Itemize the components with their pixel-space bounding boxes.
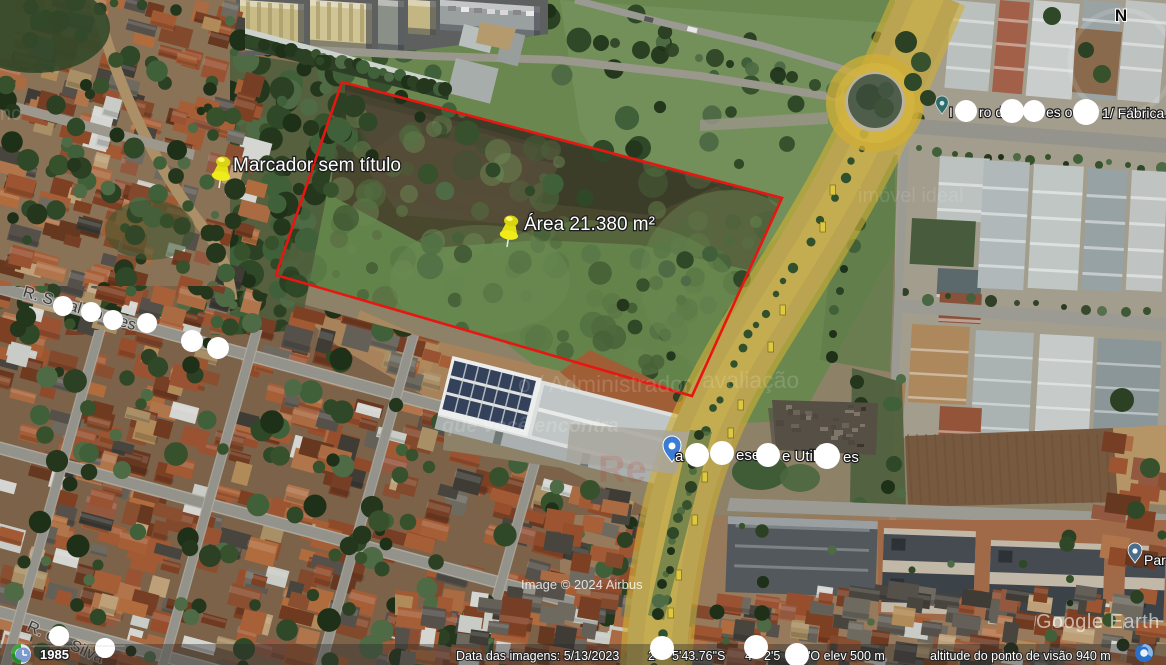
svg-text:avaliação: avaliação bbox=[702, 367, 799, 393]
svg-text:nc: nc bbox=[0, 103, 21, 125]
svg-text:es: es bbox=[843, 449, 859, 466]
svg-text:o / Administrador: o / Administrador bbox=[518, 371, 691, 397]
svg-text:que você encontra: que você encontra bbox=[442, 415, 619, 437]
svg-text:ro d: ro d bbox=[979, 104, 1003, 120]
svg-text:N: N bbox=[1115, 6, 1127, 25]
svg-text:altitude do ponto de visão: altitude do ponto de visão 940 m bbox=[930, 649, 1111, 663]
svg-text:5'43.76"S: 5'43.76"S bbox=[672, 649, 725, 663]
svg-text:Área 21.380 m²: Área 21.380 m² bbox=[524, 214, 655, 235]
svg-text:Image © 2024 Airbus: Image © 2024 Airbus bbox=[521, 577, 643, 592]
svg-text:I: I bbox=[949, 104, 953, 120]
svg-text:Re: Re bbox=[598, 449, 647, 491]
svg-text:e Util: e Util bbox=[782, 448, 816, 465]
svg-text:imóvel ideal: imóvel ideal bbox=[858, 185, 964, 207]
svg-text:Marcador sem título: Marcador sem título bbox=[233, 155, 401, 176]
svg-text:1985: 1985 bbox=[40, 647, 69, 662]
svg-text:1/ Fábrica..: 1/ Fábrica.. bbox=[1102, 105, 1166, 121]
svg-text:a: a bbox=[675, 448, 684, 465]
svg-text:Data das imagens: 5/13/2023: Data das imagens: 5/13/2023 bbox=[456, 649, 619, 663]
svg-text:"O elev 500 m: "O elev 500 m bbox=[806, 649, 885, 663]
svg-text:Google Earth: Google Earth bbox=[1036, 611, 1160, 633]
svg-text:Par: Par bbox=[1144, 552, 1166, 568]
svg-text:es o: es o bbox=[1046, 104, 1073, 120]
